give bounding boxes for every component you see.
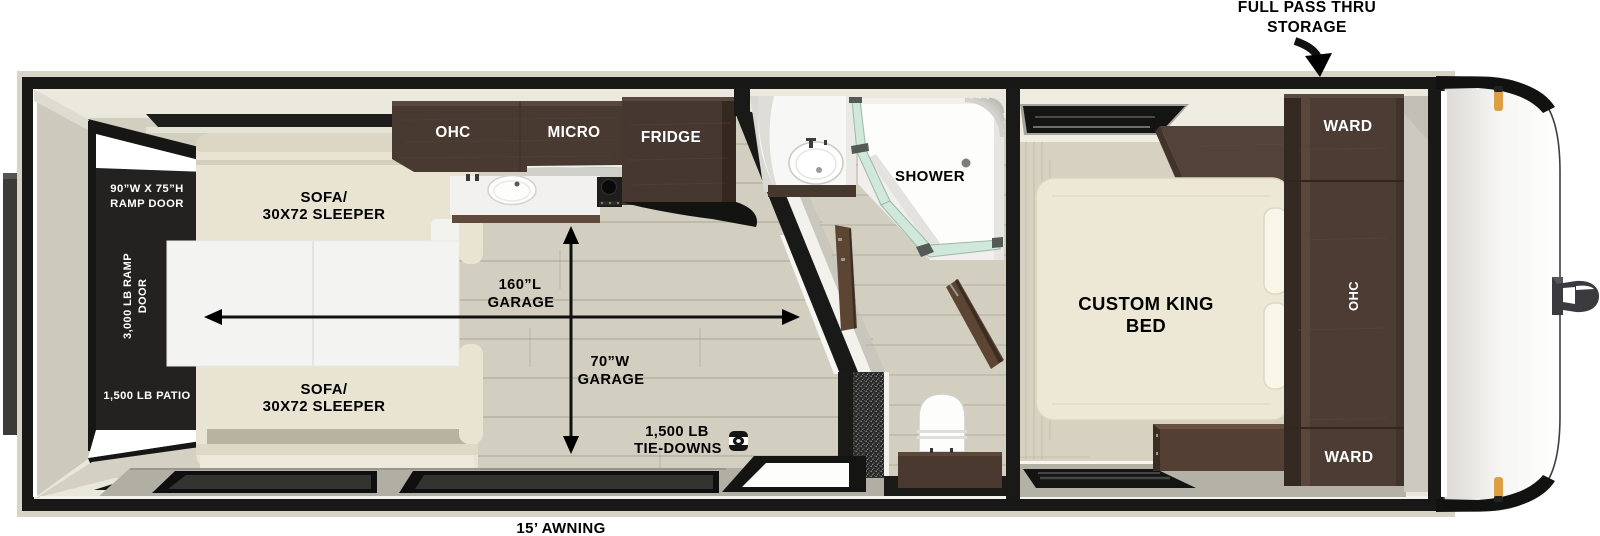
svg-text:3,000 LB RAMP: 3,000 LB RAMP (122, 253, 134, 339)
svg-text:GARAGE: GARAGE (578, 372, 645, 388)
svg-text:WARD: WARD (1325, 449, 1374, 466)
svg-text:FRIDGE: FRIDGE (641, 129, 701, 146)
svg-text:RAMP DOOR: RAMP DOOR (110, 198, 184, 210)
svg-text:OHC: OHC (1346, 281, 1361, 311)
svg-text:SHOWER: SHOWER (895, 168, 965, 185)
svg-text:SOFA/: SOFA/ (300, 189, 347, 206)
svg-text:SOFA/: SOFA/ (300, 381, 347, 398)
svg-text:MICRO: MICRO (548, 124, 601, 141)
svg-text:15’ AWNING: 15’ AWNING (516, 520, 605, 536)
svg-text:FULL PASS THRU: FULL PASS THRU (1238, 0, 1376, 16)
svg-text:BED: BED (1126, 315, 1166, 336)
svg-text:CUSTOM KING: CUSTOM KING (1078, 293, 1214, 314)
svg-text:DOOR: DOOR (137, 279, 149, 314)
svg-text:STORAGE: STORAGE (1267, 19, 1347, 36)
svg-text:1,500 LB PATIO: 1,500 LB PATIO (103, 390, 190, 402)
svg-text:1,500 LB: 1,500 LB (645, 424, 709, 440)
svg-text:70”W: 70”W (590, 354, 629, 370)
svg-text:90”W X 75”H: 90”W X 75”H (110, 183, 183, 195)
svg-text:30X72 SLEEPER: 30X72 SLEEPER (263, 206, 386, 223)
svg-text:TIE-DOWNS: TIE-DOWNS (634, 441, 722, 457)
svg-text:OHC: OHC (435, 124, 470, 141)
svg-text:GARAGE: GARAGE (488, 295, 555, 311)
svg-text:WARD: WARD (1324, 118, 1373, 135)
svg-text:30X72 SLEEPER: 30X72 SLEEPER (263, 398, 386, 415)
svg-text:160”L: 160”L (499, 277, 542, 293)
